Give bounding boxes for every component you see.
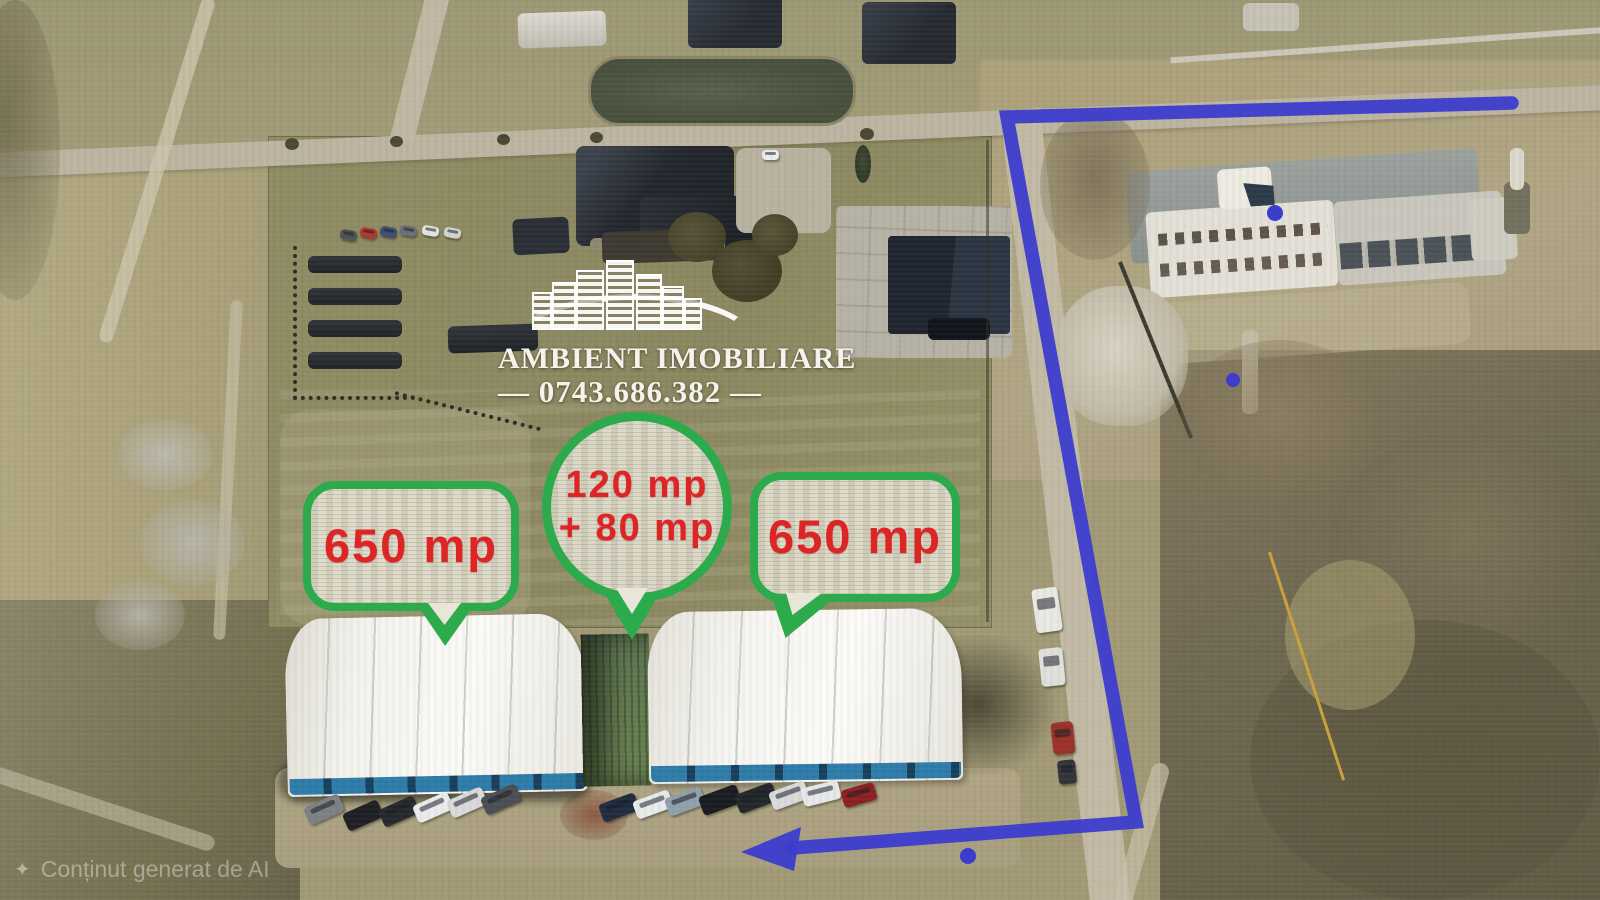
- route-dot: [1267, 205, 1283, 221]
- area-label-left: 650 mp: [324, 520, 498, 573]
- logo-tower: [552, 282, 576, 330]
- ai-caption: ✦ Conținut generat de AI: [14, 856, 270, 883]
- route-arrow-overlay: [0, 0, 1600, 900]
- area-label-center-line1: 120 mp: [559, 464, 716, 507]
- area-bubble-center: 120 mp + 80 mp: [542, 412, 732, 602]
- area-bubble-left: 650 mp: [303, 481, 519, 611]
- apartment-buildings-icon: [514, 256, 744, 342]
- route-dot: [1226, 373, 1240, 387]
- route-dot: [960, 848, 976, 864]
- area-label-center: 120 mp + 80 mp: [559, 464, 716, 549]
- ai-caption-text: Conținut generat de AI: [41, 856, 270, 883]
- logo-tower: [606, 260, 634, 330]
- logo-tower: [636, 274, 662, 330]
- watermark-logo: AMBIENT IMOBILIARE — 0743.686.382 —: [498, 256, 760, 410]
- route-arrowhead: [741, 827, 801, 871]
- area-label-center-line2: + 80 mp: [559, 507, 716, 550]
- logo-tower: [684, 298, 702, 330]
- logo-tower: [662, 286, 684, 330]
- logo-tower: [576, 270, 604, 330]
- area-bubble-right: 650 mp: [750, 472, 960, 602]
- aerial-photo: AMBIENT IMOBILIARE — 0743.686.382 — 650 …: [0, 0, 1600, 900]
- area-label-right: 650 mp: [768, 511, 942, 564]
- sparkle-icon: ✦: [14, 857, 31, 882]
- logo-tower: [532, 292, 552, 330]
